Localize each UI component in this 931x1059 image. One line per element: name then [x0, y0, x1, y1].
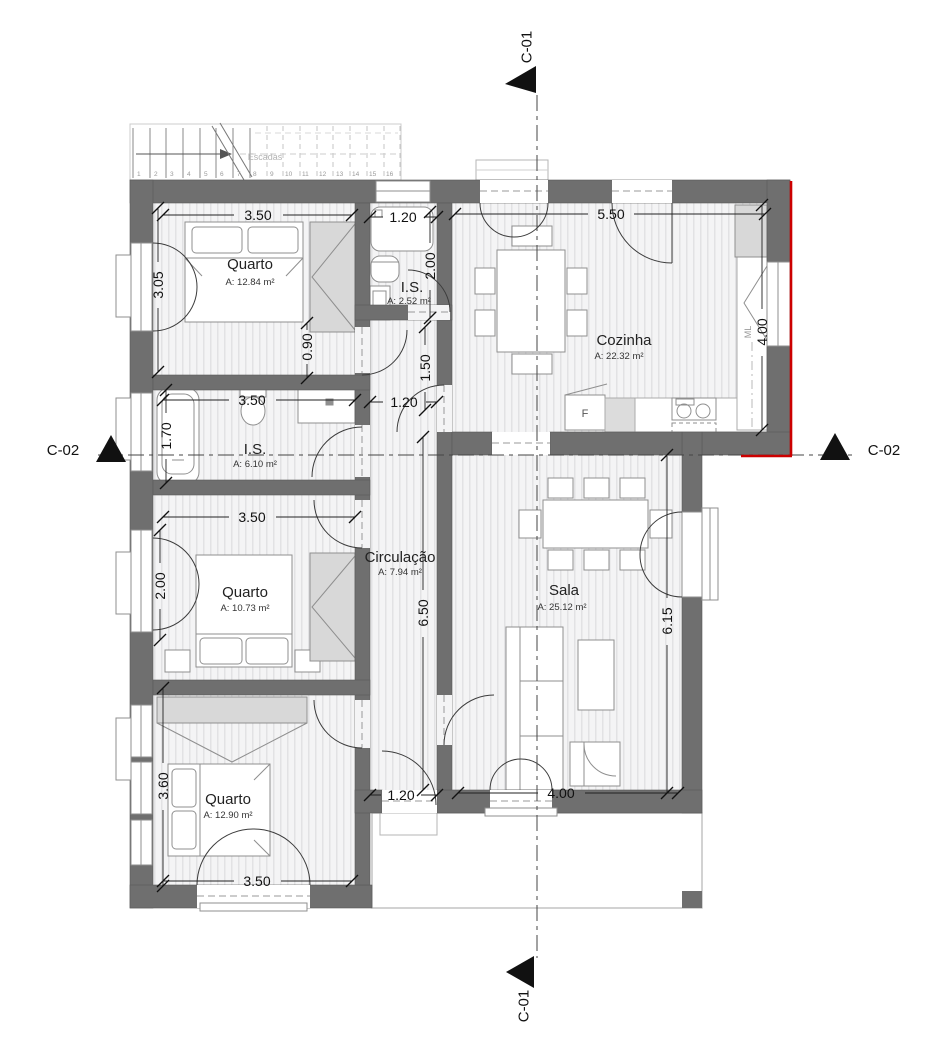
stairs-label: Escadas [248, 152, 283, 162]
svg-text:C-02: C-02 [47, 442, 80, 459]
dim-is1-height: 2.00 [422, 252, 438, 279]
svg-text:15: 15 [369, 171, 377, 178]
svg-text:14: 14 [352, 171, 360, 178]
section-arrow-c01-top [505, 66, 536, 93]
svg-text:1: 1 [137, 171, 141, 178]
section-marker-c02-right: C-02 [820, 433, 900, 460]
svg-text:3: 3 [170, 171, 174, 178]
toilet-is1 [371, 256, 399, 282]
dim-cozinha-width: 5.50 [597, 206, 624, 222]
svg-text:2: 2 [154, 171, 158, 178]
dim-sala-height: 6.15 [659, 607, 675, 634]
armchair [578, 640, 614, 710]
dim-hall-height: 6.50 [415, 599, 431, 626]
room-area-quarto1: A: 12.84 m² [225, 277, 274, 288]
room-label-is2: I.S. [244, 441, 267, 458]
section-marker-c02-left: C-02 [47, 435, 126, 462]
vanity-is2 [298, 389, 355, 423]
wardrobe-quarto2 [310, 553, 355, 661]
svg-text:5: 5 [204, 171, 208, 178]
svg-text:C-01: C-01 [516, 990, 533, 1023]
section-arrow-c01-bottom [506, 956, 534, 988]
svg-text:8: 8 [253, 171, 257, 178]
svg-text:16: 16 [386, 171, 394, 178]
room-label-sala: Sala [549, 582, 580, 599]
dim-quarto1-window: 3.05 [150, 271, 166, 298]
svg-text:12: 12 [319, 171, 327, 178]
dim-bathtub: 1.70 [158, 422, 174, 449]
room-label-quarto3: Quarto [205, 791, 251, 808]
dim-hall-door: 1.50 [417, 354, 433, 381]
svg-text:10: 10 [285, 171, 293, 178]
room-area-circulacao: A: 7.94 m² [378, 567, 422, 578]
fridge-label: F [582, 408, 589, 420]
washing-machine-label: ML [743, 326, 753, 339]
svg-text:C-01: C-01 [519, 31, 536, 64]
dim-hall-is2: 1.20 [390, 394, 417, 410]
svg-text:6: 6 [220, 171, 224, 178]
dim-cozinha-height: 4.00 [754, 318, 770, 345]
room-area-sala: A: 25.12 m² [537, 602, 586, 613]
floor-plan-canvas: Escadas 12 34 56 78 910 1112 1314 1516 [0, 0, 931, 1059]
svg-text:9: 9 [270, 171, 274, 178]
section-arrow-c02-right [820, 433, 850, 460]
room-area-is2: A: 6.10 m² [233, 459, 277, 470]
room-area-cozinha: A: 22.32 m² [594, 351, 643, 362]
dim-quarto2-width: 3.50 [238, 509, 265, 525]
dim-is1-width: 1.20 [389, 209, 416, 225]
room-label-quarto1: Quarto [227, 256, 273, 273]
svg-text:C-02: C-02 [868, 442, 901, 459]
back-step [380, 813, 437, 835]
terrace-pillar [682, 891, 702, 908]
dim-exit-width: 1.20 [387, 787, 414, 803]
section-marker-c01-bottom: C-01 [506, 956, 534, 1022]
section-marker-c01-top: C-01 [505, 31, 536, 93]
tv-unit [570, 742, 620, 786]
floor-plan: Escadas 12 34 56 78 910 1112 1314 1516 [0, 0, 931, 1059]
room-label-circulacao: Circulação [365, 549, 436, 566]
svg-text:4: 4 [187, 171, 191, 178]
dim-quarto2-window: 2.00 [152, 572, 168, 599]
room-label-is1: I.S. [401, 279, 424, 296]
room-area-quarto3: A: 12.90 m² [203, 810, 252, 821]
dim-sala-width: 4.00 [547, 785, 574, 801]
room-label-cozinha: Cozinha [596, 332, 652, 349]
wardrobe-quarto1 [310, 222, 355, 332]
sofa [506, 627, 563, 790]
room-area-is1: A: 2.52 m² [387, 296, 431, 307]
room-label-quarto2: Quarto [222, 584, 268, 601]
svg-text:7: 7 [237, 171, 241, 178]
dim-is2-width: 3.50 [238, 392, 265, 408]
stairs: Escadas 12 34 56 78 910 1112 1314 1516 [130, 123, 401, 180]
dim-hall-top: 0.90 [299, 333, 315, 360]
room-area-quarto2: A: 10.73 m² [220, 603, 269, 614]
svg-text:11: 11 [302, 171, 309, 178]
dim-quarto3-window: 3.60 [155, 772, 171, 799]
svg-text:13: 13 [336, 171, 344, 178]
dim-quarto1-width: 3.50 [244, 207, 271, 223]
dim-quarto3-width: 3.50 [243, 873, 270, 889]
